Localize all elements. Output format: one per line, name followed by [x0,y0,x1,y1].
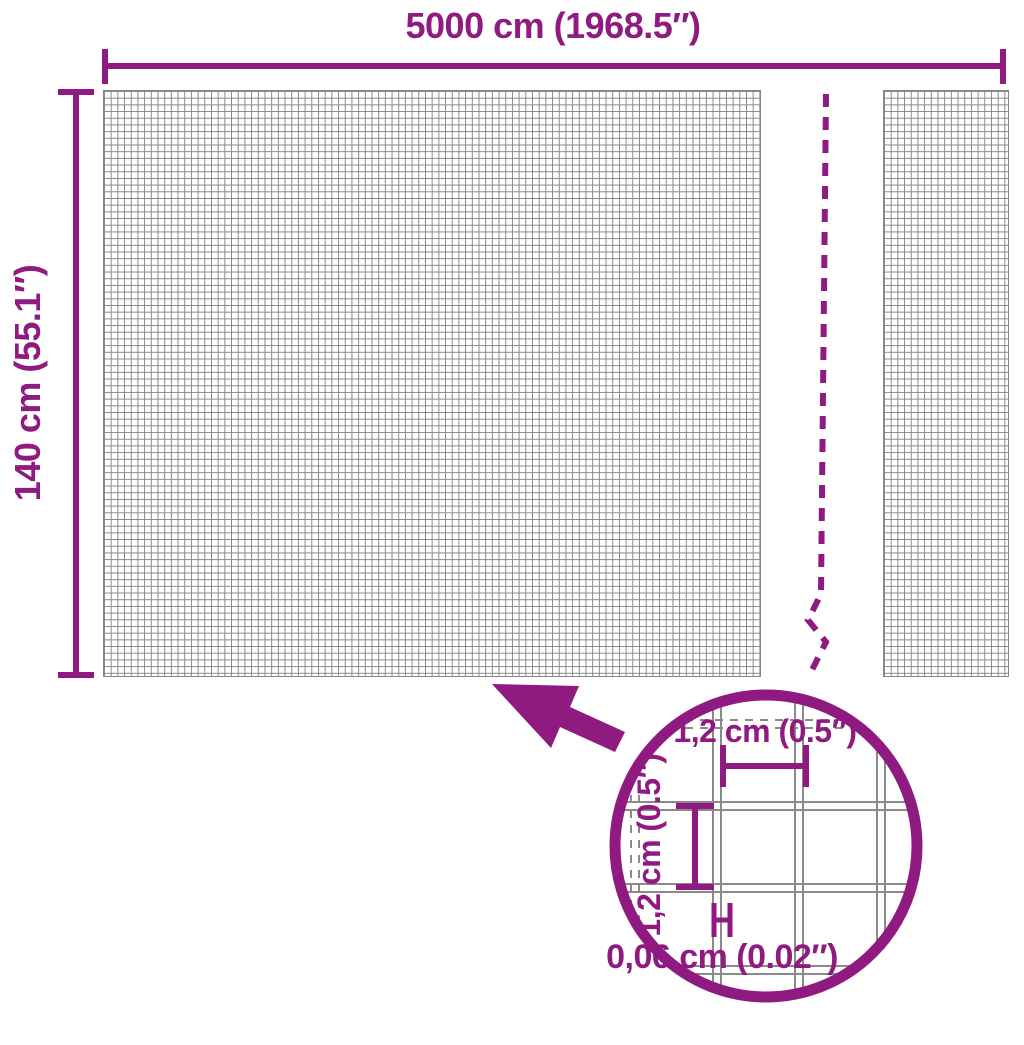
width-dimension-line [105,49,1003,84]
mesh-height-bracket [676,806,714,887]
mesh-cell-height-label: 1,2 cm (0.5″) [631,645,667,1045]
wire-thickness-label: 0,06 cm (0.02″) [472,938,972,976]
total-height-label: 140 cm (55.1″) [8,83,52,683]
total-width-label: 5000 cm (1968.5″) [103,6,1003,46]
break-dashed-line [808,94,826,676]
product-dimension-diagram: 5000 cm (1968.5″) 140 cm (55.1″) 1,2 cm … [0,0,1024,1024]
mesh-cell-width-label: 1,2 cm (0.5″) [565,713,965,749]
height-dimension-line [58,92,94,675]
mesh-width-bracket [723,745,806,787]
diagram-shapes [0,0,1024,1024]
